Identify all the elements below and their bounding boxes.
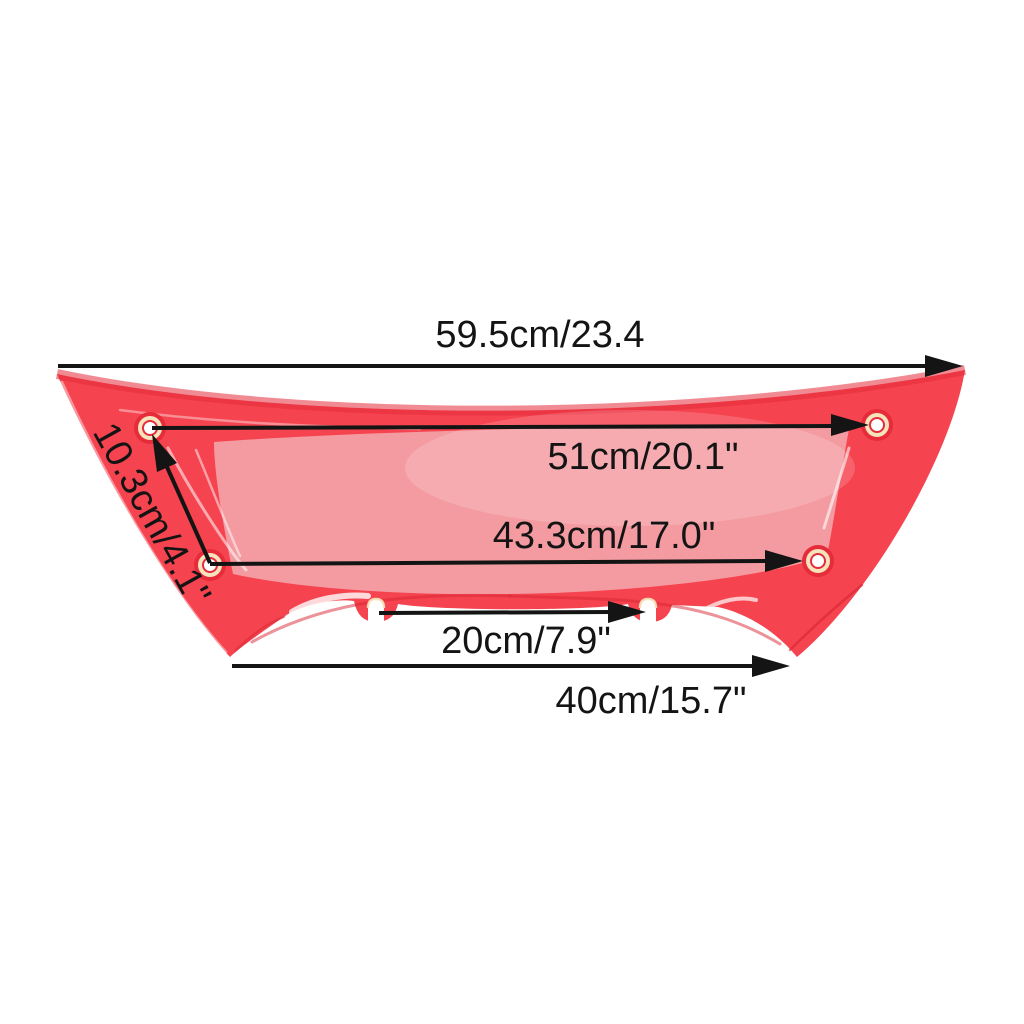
mounting-tab-slot-right [640, 599, 656, 632]
dimension-bottom-tab-span: 20cm/7.9" [379, 601, 646, 662]
dimension-label-bottom-width: 40cm/15.7" [556, 680, 747, 722]
arrowhead-right-icon [752, 655, 790, 677]
screw-hole-bottom-right [802, 545, 834, 577]
dimension-label-lower-hole-span: 43.3cm/17.0" [493, 515, 716, 557]
dimension-label-bottom-tab-span: 20cm/7.9" [441, 620, 611, 662]
mounting-tab-slot-left [368, 599, 384, 632]
dimension-overall-top-width: 59.5cm/23.4 [58, 314, 963, 377]
product-dimension-diagram: 59.5cm/23.4 51cm/20.1" 43.3cm/17.0" 20cm… [0, 0, 1024, 1024]
product-image-canvas: 59.5cm/23.4 51cm/20.1" 43.3cm/17.0" 20cm… [0, 0, 1024, 1024]
dimension-bottom-width: 40cm/15.7" [232, 655, 790, 722]
dimension-label-upper-hole-span: 51cm/20.1" [548, 436, 739, 478]
dimension-label-overall-top-width: 59.5cm/23.4 [435, 314, 644, 356]
